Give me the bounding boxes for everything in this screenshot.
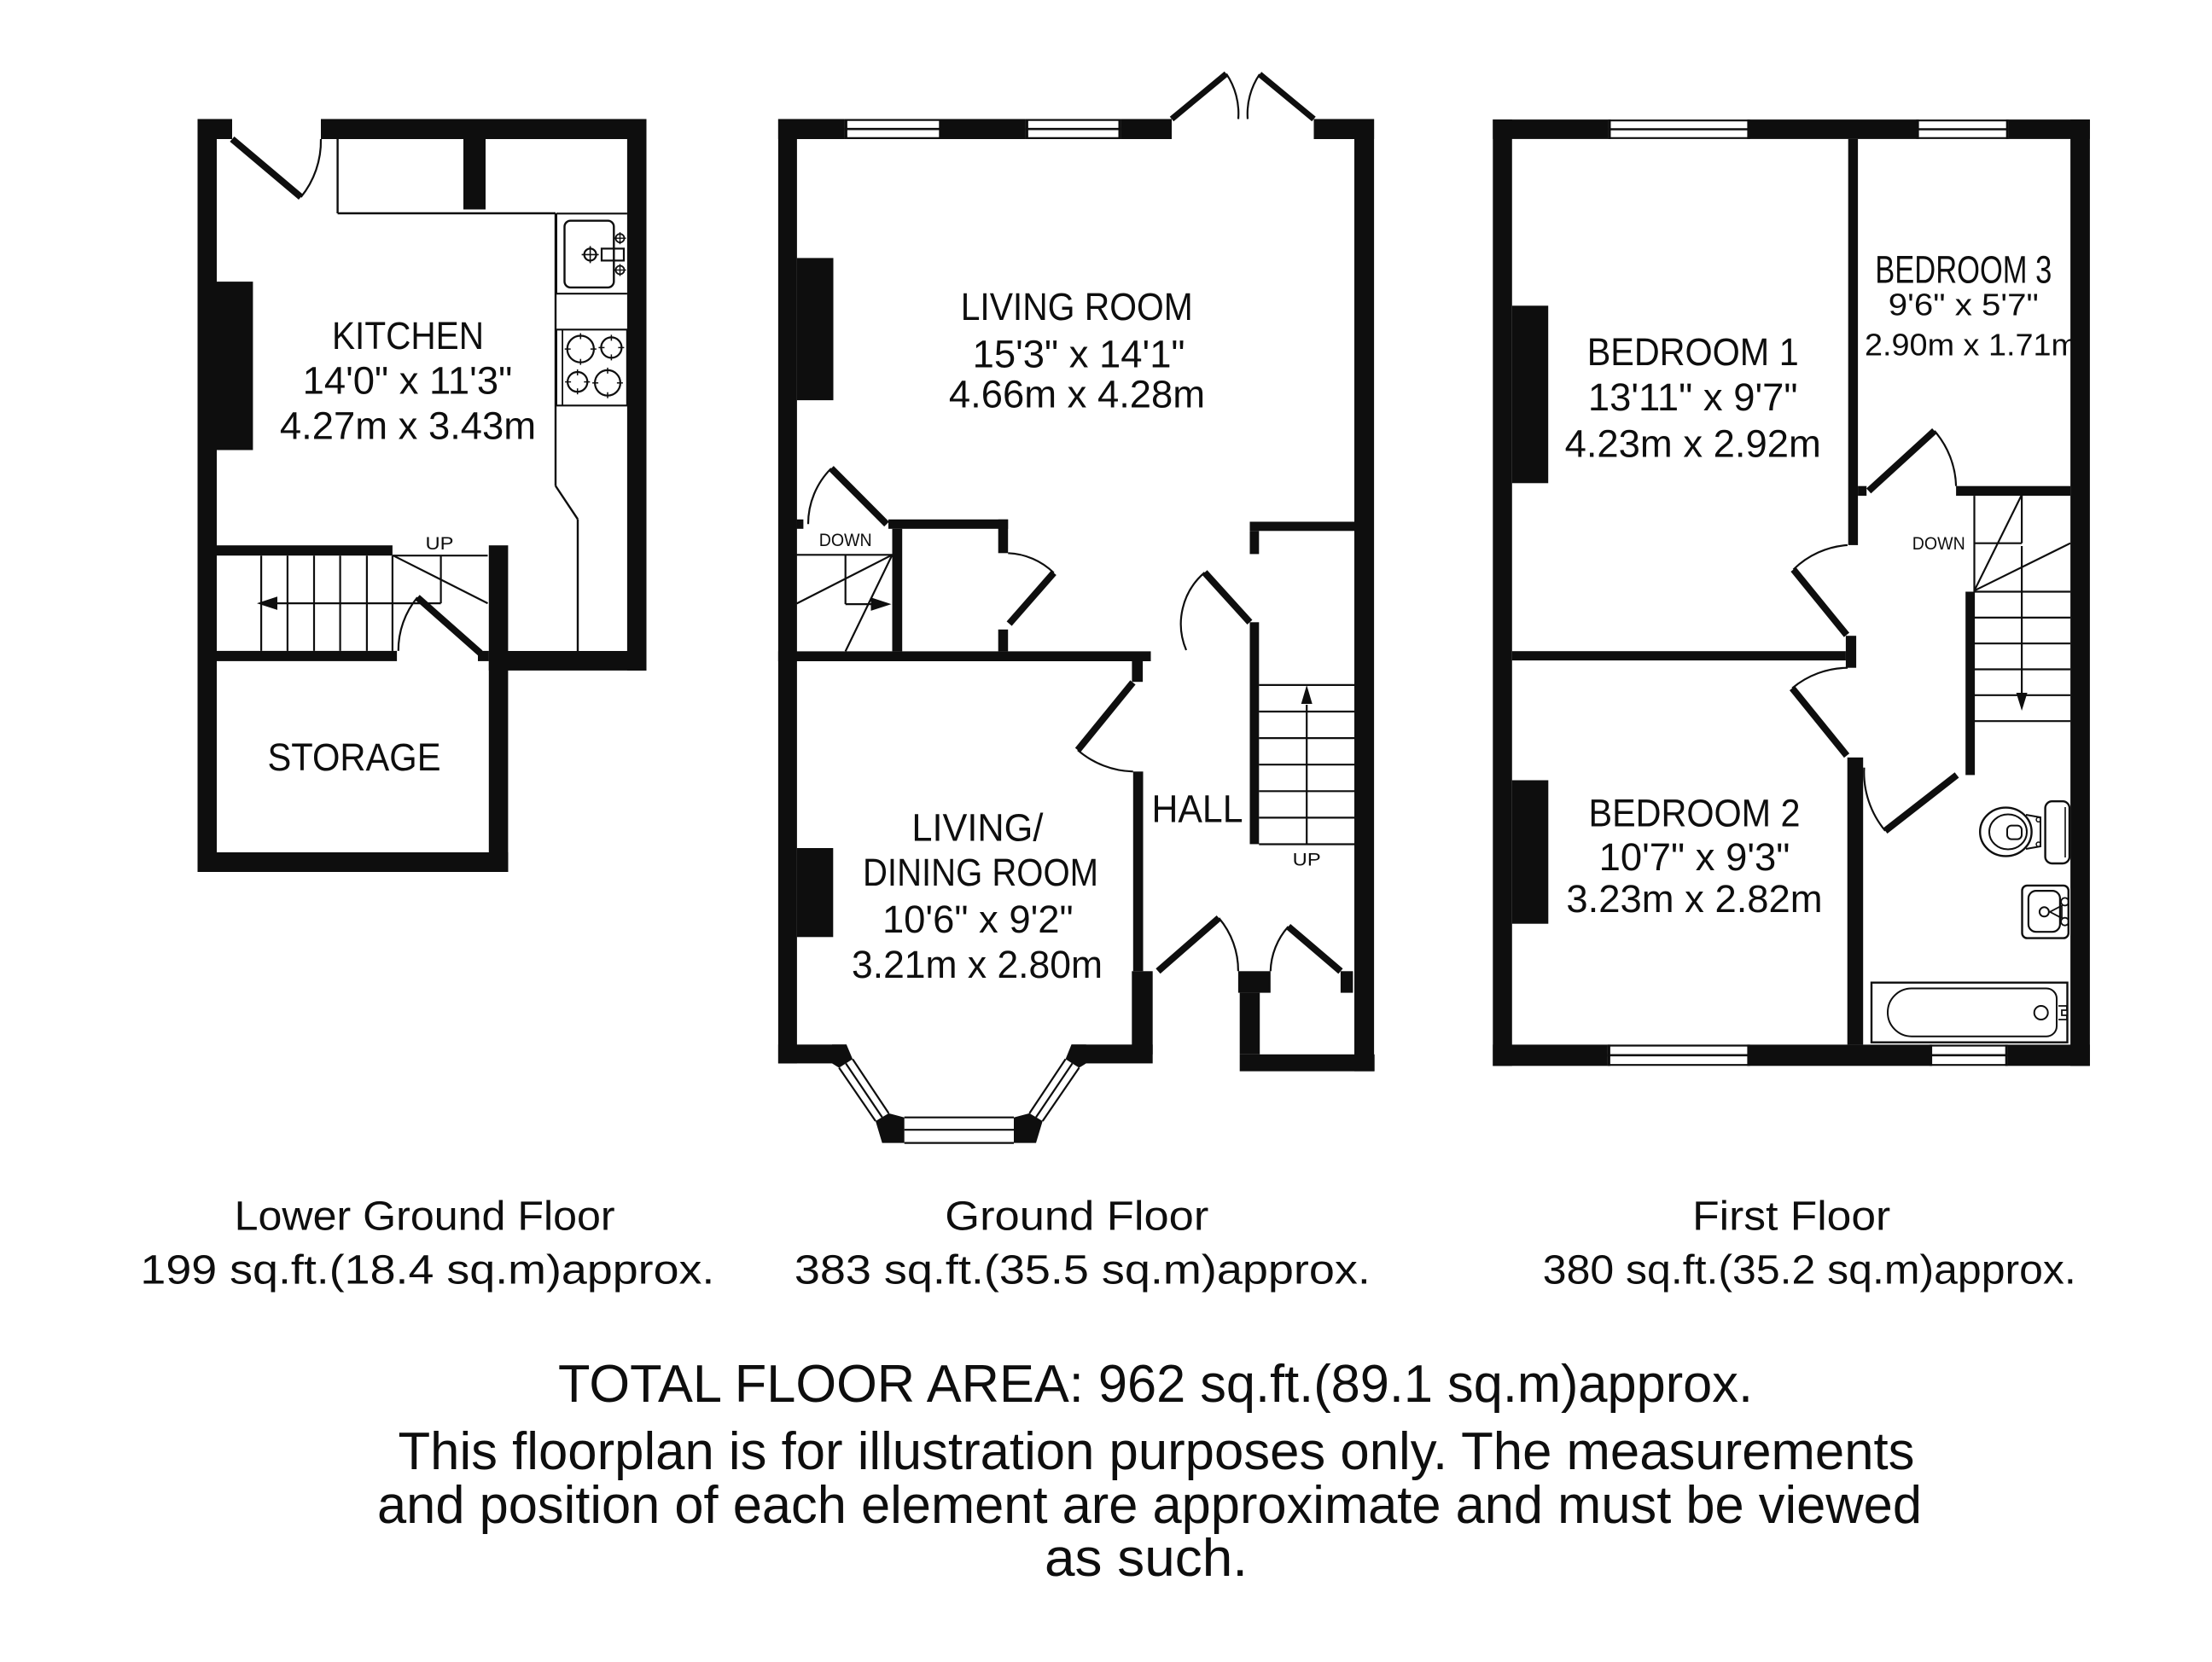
svg-text:15'3" x 14'1": 15'3" x 14'1" (973, 333, 1185, 376)
svg-text:4.66m x 4.28m: 4.66m x 4.28m (949, 373, 1205, 416)
svg-text:Lower Ground Floor: Lower Ground Floor (235, 1194, 615, 1240)
svg-text:First Floor: First Floor (1692, 1194, 1890, 1240)
svg-text:9'6" x 5'7": 9'6" x 5'7" (1889, 287, 2039, 322)
svg-text:BEDROOM 2: BEDROOM 2 (1589, 792, 1801, 835)
svg-text:DOWN: DOWN (819, 531, 872, 550)
svg-text:10'7" x 9'3": 10'7" x 9'3" (1599, 835, 1790, 879)
svg-text:UP: UP (426, 534, 454, 554)
svg-text:Ground Floor: Ground Floor (945, 1194, 1208, 1240)
svg-text:TOTAL FLOOR AREA: 962 sq.ft.(8: TOTAL FLOOR AREA: 962 sq.ft.(89.1 sq.m)a… (558, 1355, 1753, 1414)
svg-text:383 sq.ft.(35.5 sq.m)approx.: 383 sq.ft.(35.5 sq.m)approx. (795, 1248, 1371, 1293)
svg-text:4.27m x 3.43m: 4.27m x 3.43m (280, 404, 536, 448)
svg-text:10'6" x 9'2": 10'6" x 9'2" (882, 898, 1074, 941)
svg-text:STORAGE: STORAGE (268, 735, 441, 779)
svg-text:This floorplan is for illustra: This floorplan is for illustration purpo… (399, 1422, 1915, 1481)
svg-text:199 sq.ft.(18.4 sq.m)approx.: 199 sq.ft.(18.4 sq.m)approx. (140, 1248, 714, 1293)
svg-text:2.90m x 1.71m: 2.90m x 1.71m (1865, 327, 2078, 362)
svg-text:BEDROOM 3: BEDROOM 3 (1875, 248, 2052, 292)
svg-text:3.23m x 2.82m: 3.23m x 2.82m (1566, 877, 1822, 921)
svg-text:DINING ROOM: DINING ROOM (863, 851, 1098, 894)
svg-text:BEDROOM 1: BEDROOM 1 (1587, 330, 1799, 374)
svg-text:HALL: HALL (1152, 787, 1243, 831)
svg-text:14'0" x 11'3": 14'0" x 11'3" (303, 359, 513, 403)
svg-text:4.23m x 2.92m: 4.23m x 2.92m (1565, 422, 1821, 466)
svg-text:380 sq.ft.(35.2 sq.m)approx.: 380 sq.ft.(35.2 sq.m)approx. (1543, 1248, 2076, 1293)
svg-text:LIVING ROOM: LIVING ROOM (961, 285, 1193, 328)
svg-text:LIVING/: LIVING/ (911, 805, 1043, 849)
svg-text:as such.: as such. (1045, 1529, 1248, 1588)
svg-text:and position of each element a: and position of each element are approxi… (377, 1476, 1922, 1535)
svg-text:UP: UP (1293, 851, 1321, 870)
svg-text:3.21m x 2.80m: 3.21m x 2.80m (852, 943, 1103, 986)
svg-text:DOWN: DOWN (1912, 534, 1965, 554)
svg-text:13'11" x 9'7": 13'11" x 9'7" (1588, 375, 1798, 419)
svg-text:KITCHEN: KITCHEN (332, 314, 484, 357)
